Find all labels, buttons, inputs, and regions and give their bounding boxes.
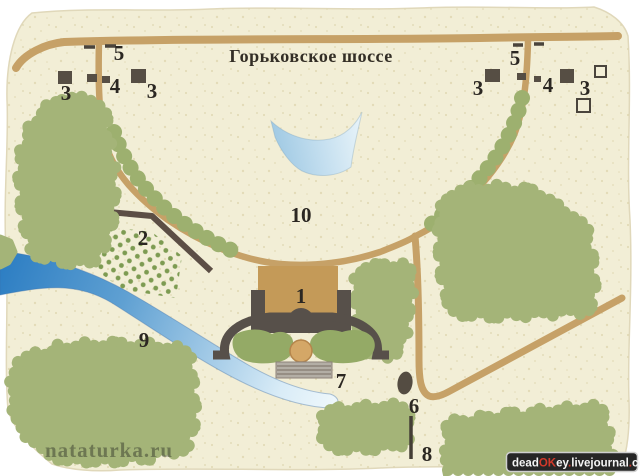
badge-text: deadOKey.livejournal.com [512, 458, 640, 470]
building-square-right-pair2 [534, 76, 541, 82]
building-square-left-pair1 [87, 74, 97, 82]
building-square-left-b [131, 69, 146, 83]
marker-4-right: 4 [543, 73, 554, 97]
estate-map: Горьковское шоссе 5 3 4 3 5 3 4 3 10 2 9… [0, 0, 640, 476]
marker-10-park: 10 [291, 203, 312, 227]
stairs [276, 362, 332, 378]
marker-9-river: 9 [139, 328, 150, 352]
courtyard-bush-right [310, 330, 375, 363]
building-outline-square-top [595, 66, 606, 77]
site-watermark: nataturka.ru [45, 438, 173, 462]
marker-1-house: 1 [296, 284, 307, 308]
marker-3-right-a: 3 [473, 76, 484, 100]
marker-3-right-b: 3 [580, 76, 591, 100]
highway-label: Горьковское шоссе [229, 46, 393, 66]
marker-8-line: 8 [422, 442, 433, 466]
badge-watermark: deadOKey.livejournal.com [507, 453, 640, 472]
courtyard-bush-left [233, 330, 294, 364]
marker-4-left: 4 [110, 74, 121, 98]
building-square-right-pair1 [517, 73, 526, 80]
building-square-right-b [560, 69, 574, 83]
marker-5-left: 5 [114, 41, 125, 65]
marker-7-stairs: 7 [336, 369, 347, 393]
fountain-circle [290, 340, 312, 362]
marker-2-alley: 2 [138, 226, 149, 250]
marker-3-left-a: 3 [61, 81, 72, 105]
marker-3-left-b: 3 [147, 79, 158, 103]
marker-6-oval: 6 [409, 394, 420, 418]
marker-5-right: 5 [510, 46, 521, 70]
building-outline-square-bottom [577, 99, 590, 112]
forest-left-edge-sliver [0, 238, 14, 266]
building-square-right-a [485, 69, 500, 82]
